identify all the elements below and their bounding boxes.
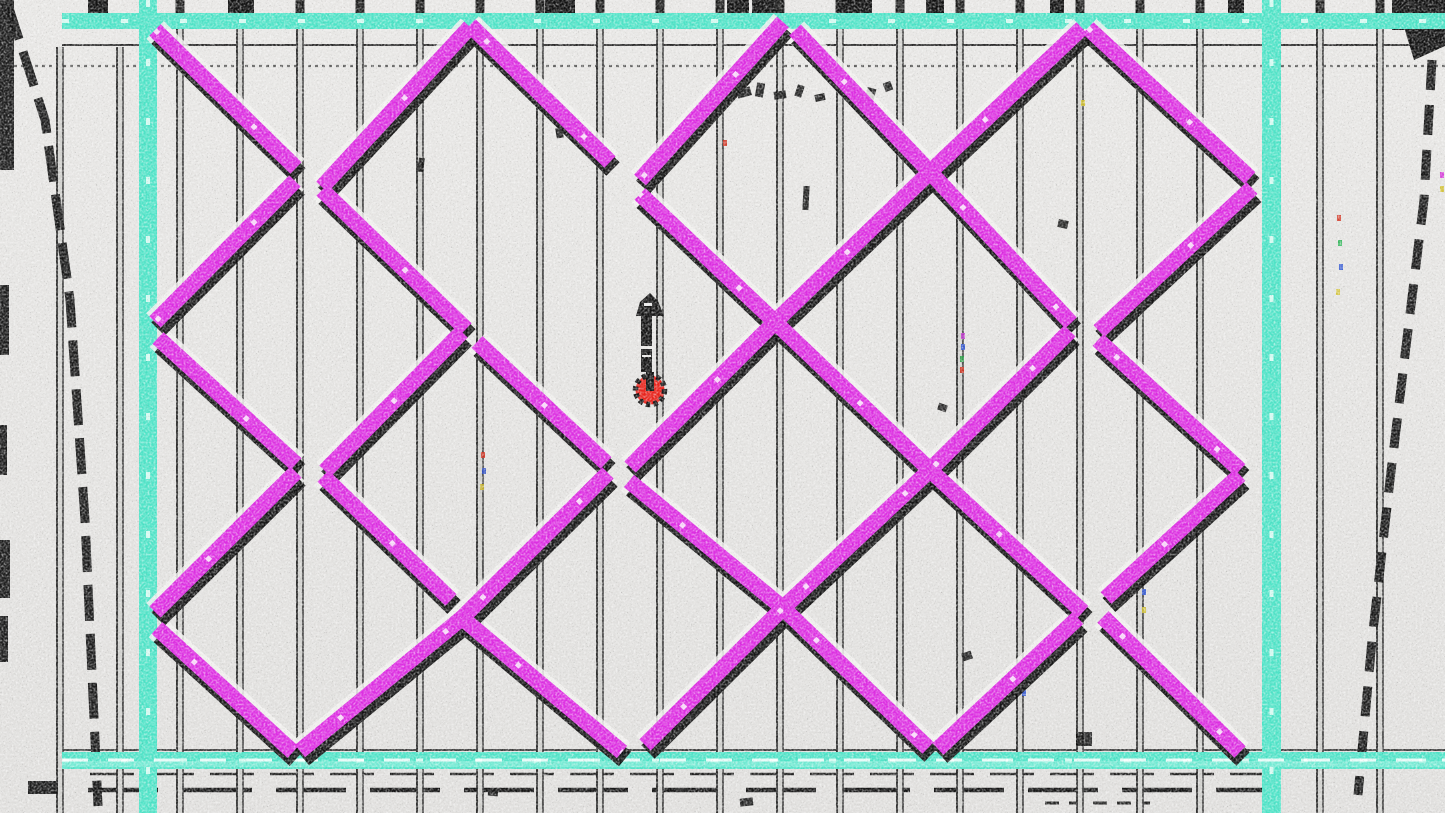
- game-viewport: Colorized blueprint maze — red player to…: [0, 0, 1445, 813]
- grain-white-overlay: [0, 0, 1445, 813]
- scene-svg: Colorized blueprint maze — red player to…: [0, 0, 1445, 813]
